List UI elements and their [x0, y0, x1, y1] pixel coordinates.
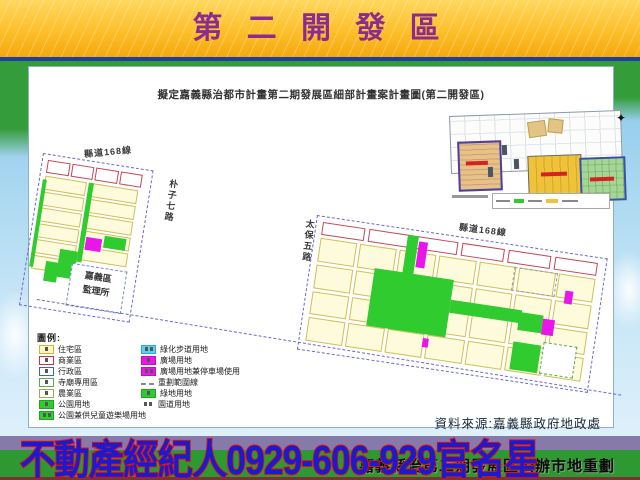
legend-swatch-plaza: [141, 356, 156, 365]
legend-label: 住宅區: [58, 344, 82, 355]
garden-road-zone: [539, 342, 577, 379]
inset-patch: [527, 120, 547, 138]
inset-road-plate: [514, 159, 519, 169]
swatch-mark: [144, 402, 147, 406]
legend-label: 廣場用地: [160, 355, 192, 366]
inset-legend-green-mark: [514, 199, 524, 203]
left-green-decor: [0, 61, 28, 157]
swatch-mark: [145, 347, 148, 351]
parcel-cell: [309, 291, 349, 320]
left-parcel: 嘉義區 監理所: [26, 160, 147, 314]
legend-column-right: 綠化步道用地 廣場用地 廣場用地兼停車場使用 重劃範圍線 綠地用地 園道用地: [141, 344, 301, 410]
legend-label: 廣場用地兼停車場使用: [160, 366, 240, 377]
legend-label: 農業區: [58, 388, 82, 399]
swatch-mark: [45, 358, 48, 362]
slide: 第 二 開 發 區 擬定嘉義縣治都市計畫第二期發展區細部計畫案計畫圖(第二開發區…: [0, 0, 640, 480]
parcel-cell: [313, 264, 353, 293]
realtor-ad-text: 不動產經紀人0929-606-929官名星: [20, 426, 539, 480]
swatch-mark: [147, 391, 150, 395]
map-panel: 擬定嘉義縣治都市計畫第二期發展區細部計畫案計畫圖(第二開發區): [28, 66, 614, 428]
inset-caption-mark: [452, 195, 488, 198]
swatch-mark: [45, 380, 48, 384]
right-parcel: [305, 222, 598, 382]
legend-label: 綠化步道用地: [160, 344, 208, 355]
plaza-block: [84, 237, 102, 252]
inset-zone-label-mark: [466, 161, 488, 166]
road-label-county168-right: 縣道168線: [458, 220, 507, 239]
inset-zone-label-mark: [541, 172, 567, 177]
inset-overview-map: ✦: [444, 111, 632, 215]
legend-swatch-green-walkway: [141, 345, 156, 354]
swatch-mark: [45, 347, 48, 351]
legend-label: 綠地用地: [160, 388, 192, 399]
legend-label: 商業區: [58, 355, 82, 366]
legend-item: 公園兼供兒童遊樂場用地: [39, 410, 174, 421]
slide-title: 第 二 開 發 區: [0, 0, 640, 57]
swatch-mark: [48, 413, 51, 417]
inset-legend-mark: [528, 200, 542, 202]
inset-road-plate: [488, 167, 493, 177]
legend-item: 重劃範圍線: [141, 377, 301, 388]
legend-swatch-park-playground: [39, 411, 54, 420]
legend-swatch-park: [39, 400, 54, 409]
legend-label: 公園用地: [58, 399, 90, 410]
swatch-mark: [150, 369, 153, 373]
legend-swatch-garden-road: [141, 401, 154, 408]
legend-swatch-green-land: [141, 389, 156, 398]
inset-patch: [547, 118, 563, 133]
legend-swatch-residential: [39, 345, 54, 354]
legend-label: 重劃範圍線: [158, 377, 198, 388]
legend-swatch-commercial: [39, 356, 54, 365]
parcel-cell: [317, 238, 357, 267]
legend-swatch-administrative: [39, 367, 54, 376]
park-block: [43, 261, 59, 283]
inset-legend-yellow-mark: [546, 199, 558, 203]
parcel-cell-commercial: [70, 164, 94, 180]
parcel-cell: [476, 262, 516, 291]
inset-zone-yellow: [527, 154, 582, 196]
legend-label: 園道用地: [158, 399, 190, 410]
road-label-county168-left: 縣道168線: [84, 143, 133, 160]
legend-swatch-agriculture: [39, 389, 54, 398]
parcel-cell-commercial: [119, 171, 143, 187]
inset-legend-mark: [496, 200, 510, 202]
parcel-cell: [555, 273, 595, 302]
dmv-label-line1: 嘉義區: [84, 270, 112, 284]
swatch-mark: [45, 391, 48, 395]
legend-item: 綠地用地: [141, 388, 301, 399]
park-block: [509, 341, 541, 373]
inset-legend-mark: [562, 200, 578, 202]
legend-item: 綠化步道用地: [141, 344, 301, 355]
central-park-block: [366, 268, 454, 337]
legend-label: 寺廟專用區: [58, 377, 98, 388]
plaza-block: [541, 319, 555, 337]
parcel-cell: [305, 317, 345, 346]
park-block: [517, 312, 543, 333]
legend-item: 園道用地: [141, 399, 301, 410]
dmv-site: 嘉義區 監理所: [65, 263, 127, 314]
swatch-mark: [145, 369, 148, 373]
parcel-cell: [424, 335, 464, 364]
swatch-mark: [149, 402, 152, 406]
inset-zone-purple: [457, 140, 503, 192]
legend-swatch-boundary-line: [141, 383, 154, 385]
north-arrow-icon: ✦: [616, 111, 626, 125]
parcel-cell-commercial: [94, 168, 118, 184]
parcel-cell: [464, 341, 504, 370]
left-parcel-boundary: 嘉義區 監理所: [19, 153, 154, 323]
legend-title: 圖例:: [37, 331, 61, 344]
swatch-mark: [147, 358, 150, 362]
legend-swatch-plaza-parking: [141, 367, 156, 376]
inset-legend-bar: [492, 193, 610, 209]
swatch-mark: [45, 369, 48, 373]
swatch-mark: [43, 413, 46, 417]
legend-label: 公園兼供兒童遊樂場用地: [58, 410, 146, 421]
parcel-cell-commercial: [46, 160, 70, 176]
dmv-label-line2: 監理所: [82, 283, 110, 297]
swatch-mark: [150, 347, 153, 351]
inset-zone-label-mark: [590, 177, 614, 182]
map-title: 擬定嘉義縣治都市計畫第二期發展區細部計畫案計畫圖(第二開發區): [29, 87, 613, 102]
road-label-puzi7: 朴子七路: [160, 178, 181, 235]
legend-label: 行政區: [58, 366, 82, 377]
legend-item: 廣場用地兼停車場使用: [141, 366, 301, 377]
legend-swatch-temple: [39, 378, 54, 387]
swatch-mark: [45, 402, 48, 406]
inset-road-plate: [502, 145, 507, 155]
right-parcel-boundary: [297, 215, 608, 393]
legend-item: 廣場用地: [141, 355, 301, 366]
